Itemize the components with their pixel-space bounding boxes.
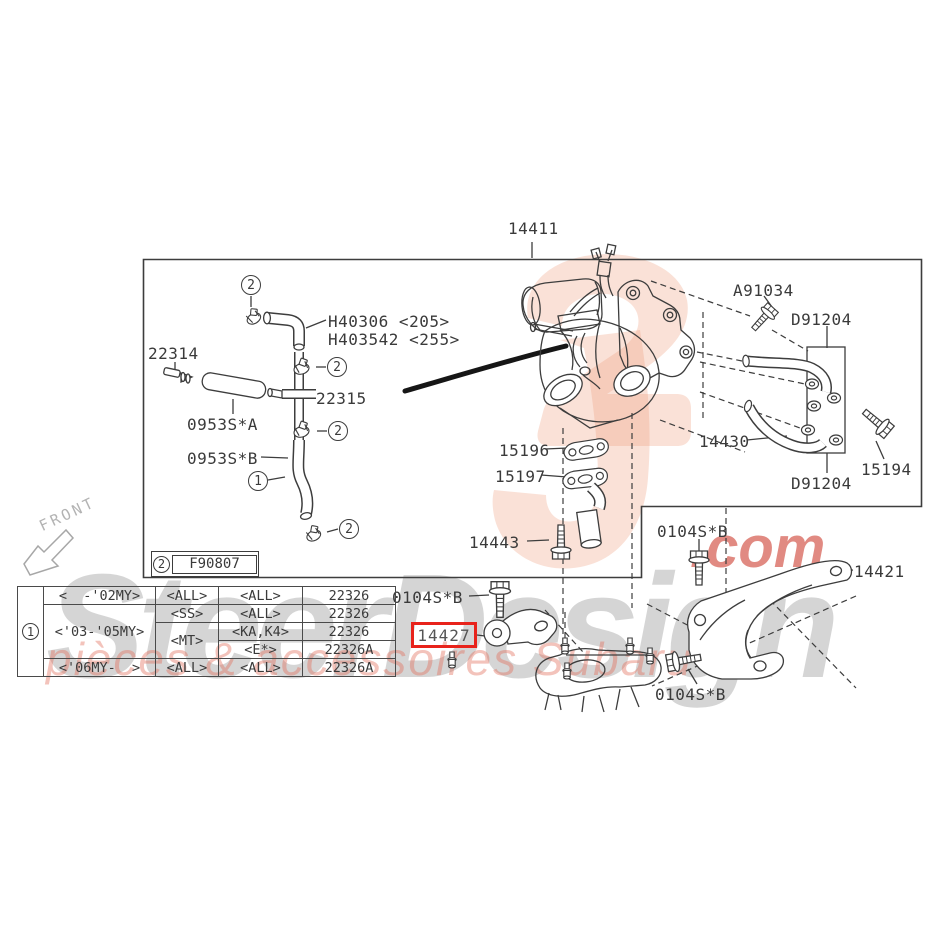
transmission-cell: <SS>: [156, 605, 219, 623]
spec-cell: <ALL>: [219, 605, 303, 623]
callout-0104s-right-top: 0104S*B: [657, 522, 728, 541]
ref-circle-2: 2: [339, 519, 359, 539]
callout-14430: 14430: [699, 432, 750, 451]
table-row: <'06MY- > <ALL> <ALL> 22326A: [18, 659, 396, 677]
model-year-cell: < -'02MY>: [44, 587, 156, 605]
bracket-14427-group: [484, 582, 557, 646]
callout-a91034: A91034: [733, 281, 794, 300]
table-ref-cell: 1: [18, 587, 44, 677]
part-number-cell: 22326: [303, 623, 396, 641]
part-number-cell: 22326A: [303, 641, 396, 659]
highlighted-part-14427[interactable]: 14427: [411, 622, 477, 648]
ref-circle-1: 1: [22, 623, 39, 640]
ref-circle-1: 1: [248, 471, 268, 491]
figure-ref-code: F90807: [172, 555, 257, 574]
callout-22315: 22315: [316, 389, 367, 408]
callout-15197: 15197: [495, 467, 546, 486]
callout-h40306: H40306 <205>: [328, 312, 450, 331]
callout-0953s-b: 0953S*B: [187, 449, 258, 468]
applicability-table: 1 < -'02MY> <ALL> <ALL> 22326 <'03-'05MY…: [17, 586, 396, 677]
callout-22314: 22314: [148, 344, 199, 363]
part-number-cell: 22326: [303, 587, 396, 605]
callout-h403542: H403542 <255>: [328, 330, 460, 349]
callout-15196: 15196: [499, 441, 550, 460]
callout-14443: 14443: [469, 533, 520, 552]
table-row: <'03-'05MY> <SS> <ALL> 22326: [18, 605, 396, 623]
callout-d91204-bottom: D91204: [791, 474, 852, 493]
spec-cell: <ALL>: [219, 587, 303, 605]
figure-ref-box: 2 F90807: [151, 551, 259, 577]
callout-0953s-a: 0953S*A: [187, 415, 258, 434]
ref-circle-2: 2: [241, 275, 261, 295]
callout-0104s-right-bottom: 0104S*B: [655, 685, 726, 704]
oil-drain-group: [551, 435, 610, 559]
callout-14411: 14411: [508, 219, 559, 238]
callout-15194: 15194: [861, 460, 912, 479]
transmission-cell: <ALL>: [156, 659, 219, 677]
heat-shield-plate: [448, 638, 661, 712]
spec-cell: <ALL>: [219, 659, 303, 677]
spec-cell: <E*>: [219, 641, 303, 659]
ref-circle-2: 2: [153, 556, 170, 573]
model-year-cell: <'06MY- >: [44, 659, 156, 677]
ref-circle-2: 2: [327, 357, 347, 377]
callout-14421: 14421: [854, 562, 905, 581]
transmission-cell: <MT>: [156, 623, 219, 659]
model-year-cell: <'03-'05MY>: [44, 605, 156, 659]
table-row: 1 < -'02MY> <ALL> <ALL> 22326: [18, 587, 396, 605]
spec-cell: <KA,K4>: [219, 623, 303, 641]
pointer-swoosh: [405, 346, 566, 391]
callout-0104s-left: 0104S*B: [392, 588, 463, 607]
part-number-cell: 22326: [303, 605, 396, 623]
front-arrow: [24, 530, 73, 575]
ref-circle-2: 2: [328, 421, 348, 441]
diagram-line-art: [0, 0, 931, 931]
transmission-cell: <ALL>: [156, 587, 219, 605]
part-number-cell: 22326A: [303, 659, 396, 677]
bracket-14421-group: [665, 551, 851, 679]
callout-d91204-top: D91204: [791, 310, 852, 329]
parts-diagram-page: SteerDesign .com pièces & accessoires Su…: [0, 0, 931, 931]
